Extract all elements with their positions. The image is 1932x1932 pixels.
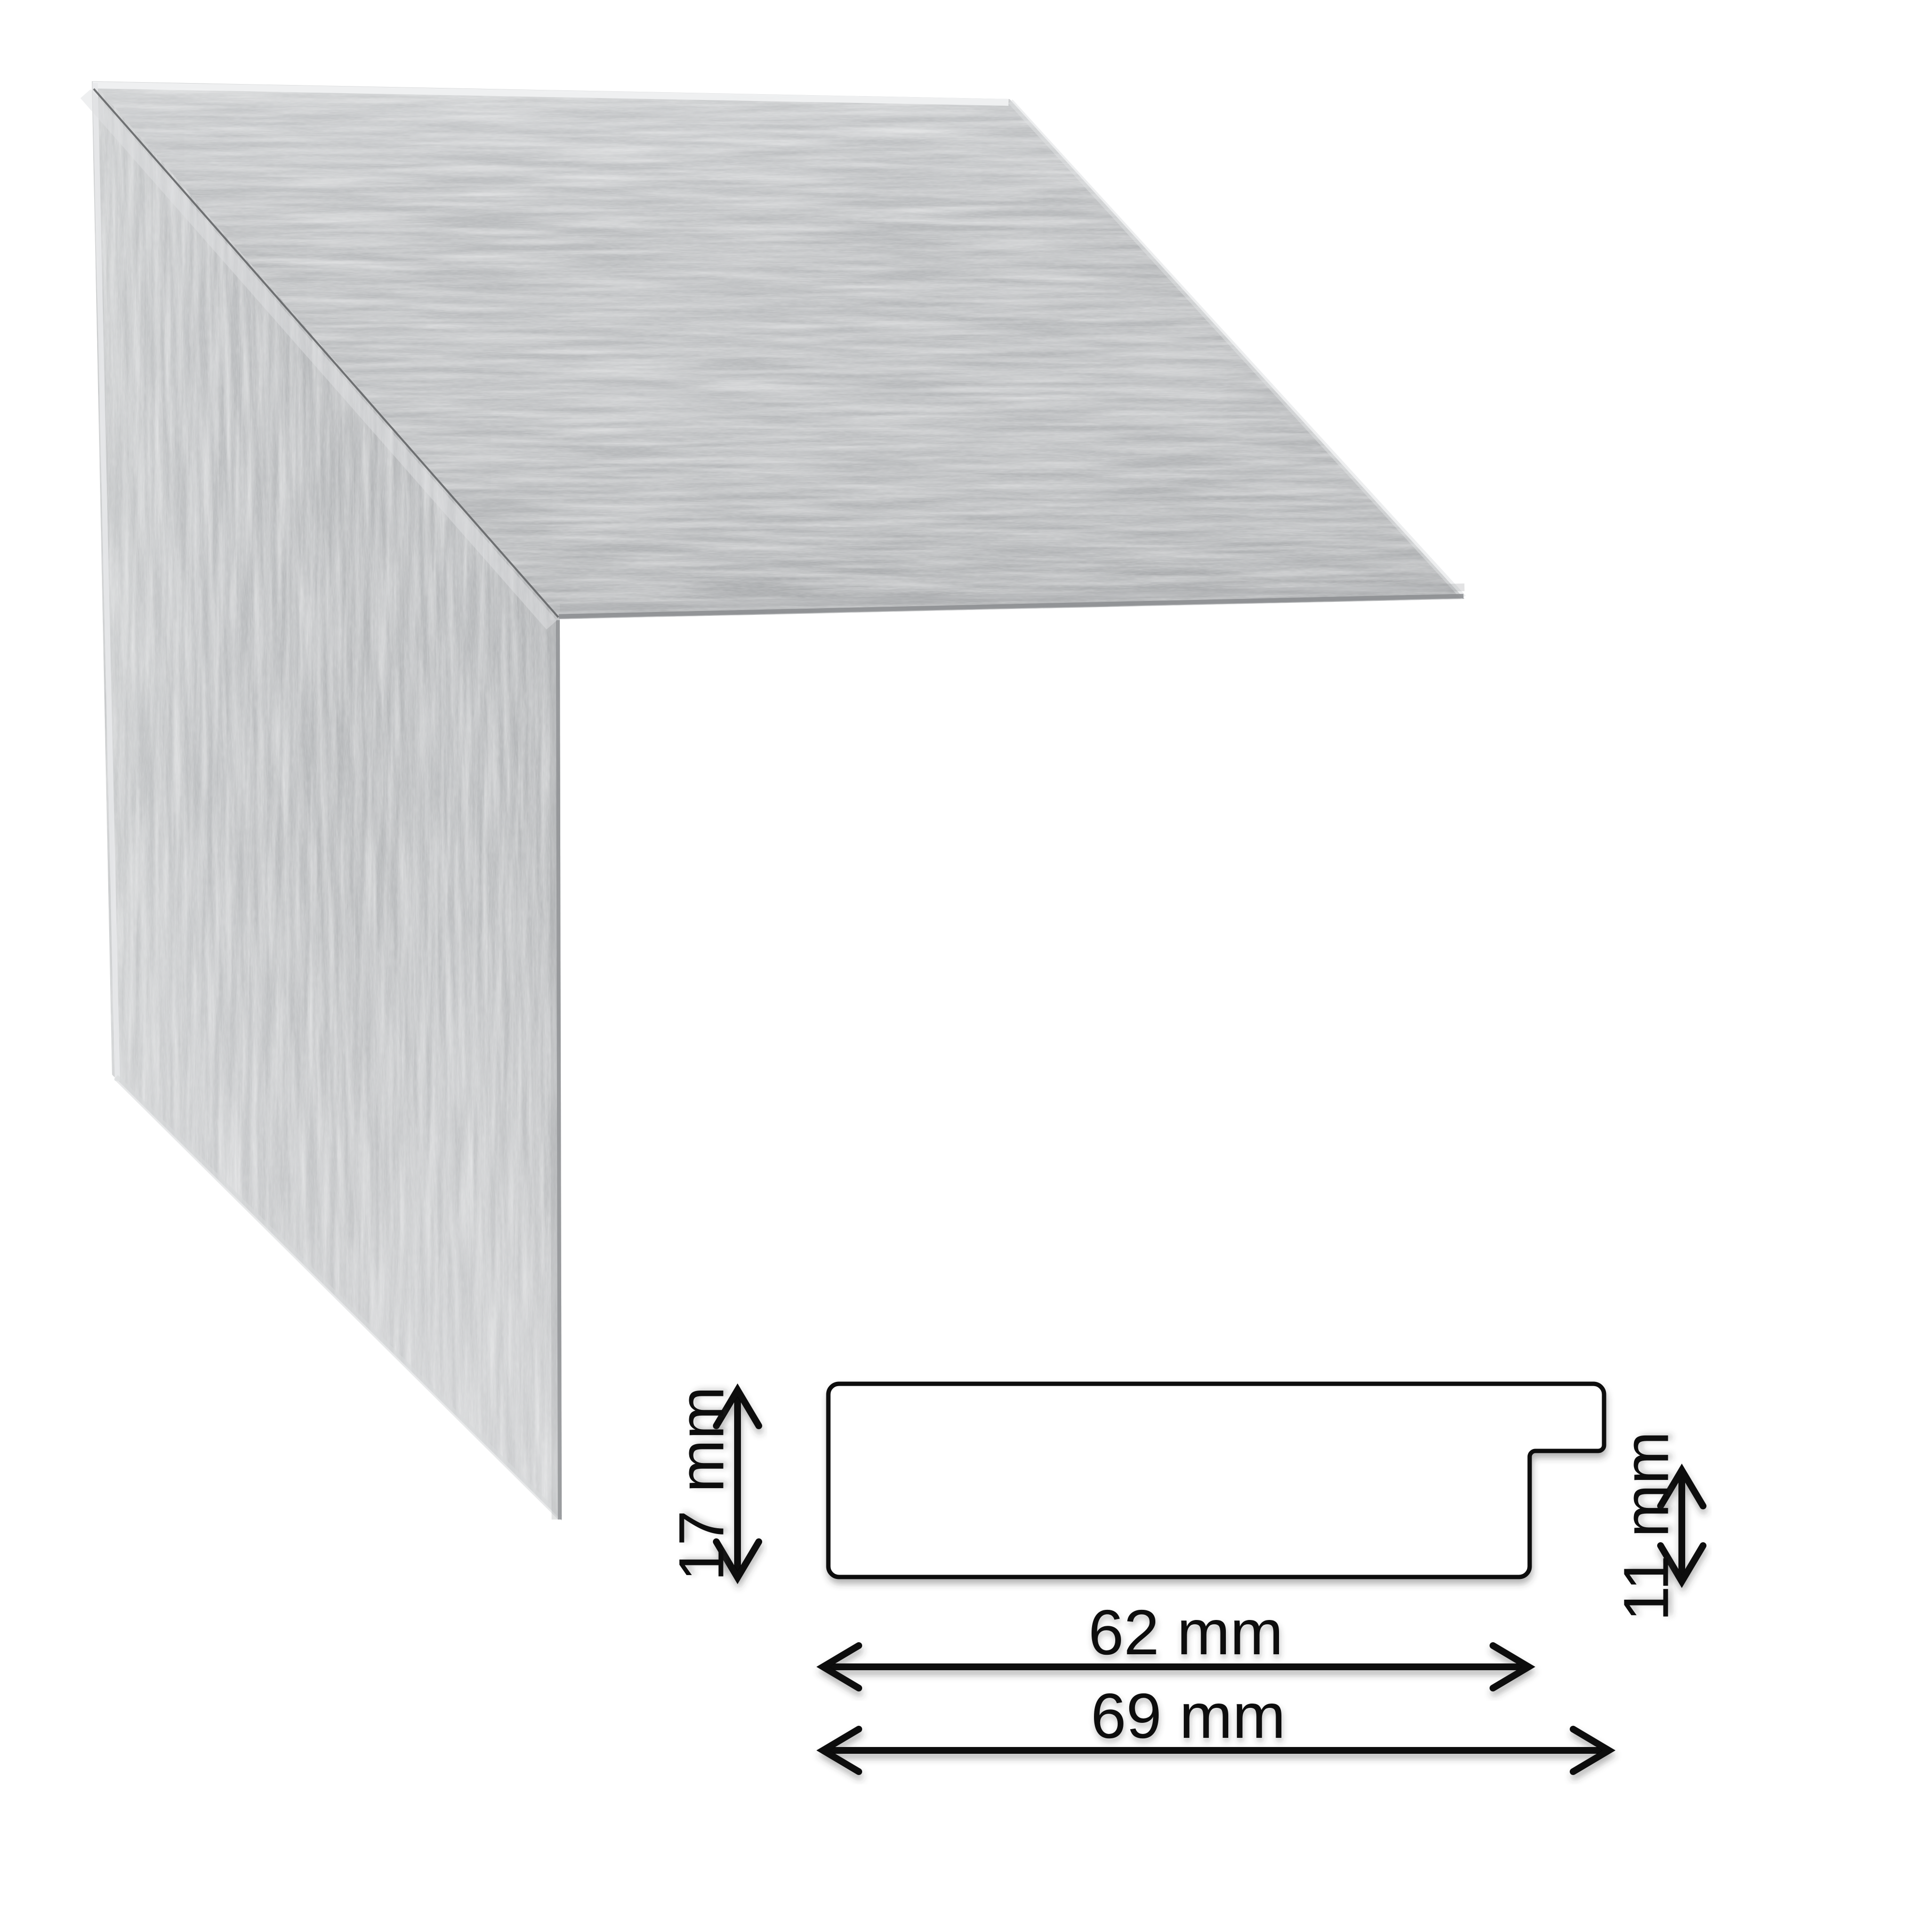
face-width-dimension: 62 mm bbox=[823, 1597, 1529, 1688]
height-dim-label: 17 mm bbox=[666, 1386, 737, 1581]
left-leg-inner-edge-shadow bbox=[558, 620, 560, 1520]
left-leg-sheen bbox=[68, 821, 594, 1550]
product-image: 17 mm 11 mm 62 mm bbox=[0, 0, 1932, 1932]
left-leg-inner-edge-band bbox=[553, 620, 555, 1520]
rabbet-dim-label: 11 mm bbox=[1611, 1431, 1682, 1621]
frame-corner-sample bbox=[68, 58, 1497, 1550]
profile-outline bbox=[828, 1384, 1604, 1577]
profile-drawing: 17 mm 11 mm 62 mm bbox=[666, 1384, 1704, 1772]
rabbet-dimension: 11 mm bbox=[1611, 1431, 1704, 1621]
total-width-dim-label: 69 mm bbox=[1091, 1680, 1285, 1751]
total-width-dimension: 69 mm bbox=[823, 1680, 1609, 1772]
height-dimension: 17 mm bbox=[666, 1386, 759, 1581]
face-width-dim-label: 62 mm bbox=[1088, 1597, 1283, 1668]
